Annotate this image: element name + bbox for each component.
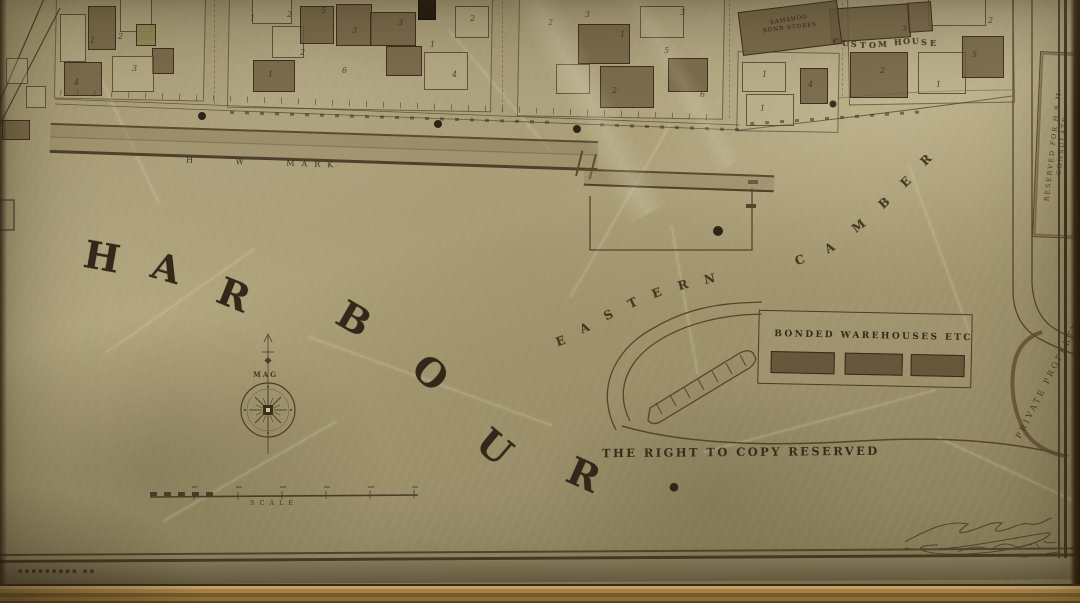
- building: [928, 0, 986, 26]
- custom-house-letter: T: [860, 40, 866, 50]
- custom-house-letter: S: [921, 37, 927, 47]
- lot-number: 3: [585, 10, 590, 19]
- lot-number: 2: [118, 32, 123, 41]
- building: [370, 12, 416, 46]
- building: [800, 68, 828, 104]
- custom-house-building: [907, 1, 933, 33]
- harbour-title-letter: .: [666, 448, 682, 502]
- lot-number: 6: [342, 66, 347, 75]
- lot-number: 3: [680, 8, 685, 17]
- map-border-line-right: [1058, 0, 1060, 558]
- warehouse-building: [844, 353, 902, 376]
- building: [336, 4, 372, 46]
- lot-number: 4: [452, 70, 457, 79]
- building: [60, 14, 86, 62]
- lot-number: 2: [287, 10, 292, 19]
- building: [6, 58, 28, 84]
- building: [112, 56, 154, 92]
- lot-number: 4: [808, 80, 813, 89]
- custom-house-letter: U: [912, 36, 919, 46]
- building: [962, 36, 1004, 78]
- custom-house-letter: O: [903, 36, 911, 46]
- harbour-title-letter: H: [80, 231, 123, 282]
- frame-edge-right: [1070, 0, 1080, 603]
- building: [850, 52, 908, 98]
- custom-house-letter: C: [832, 36, 840, 47]
- lot-number: 1: [250, 14, 255, 23]
- building: [386, 46, 422, 76]
- magnetic-north-label: MAG: [253, 370, 278, 379]
- map-border-line-right: [1064, 0, 1067, 558]
- custom-house-letter: O: [869, 40, 876, 50]
- lot-number: 2: [470, 14, 475, 23]
- street[interactable]: [729, 0, 730, 118]
- building: [252, 0, 292, 24]
- building: [300, 6, 334, 44]
- imprint-marks: ▪▪▪▪▪▪▪▪▪ ▪▪: [18, 567, 96, 575]
- custom-house-letter: M: [878, 39, 887, 49]
- custom-house-letter: S: [851, 39, 857, 49]
- lot-number: 1: [936, 80, 941, 89]
- lot-number: 1: [760, 104, 765, 113]
- lot-number: 3: [132, 64, 137, 73]
- lot-number: 4: [74, 78, 79, 87]
- building: [424, 52, 468, 90]
- frame-edge-bottom: [0, 584, 1080, 603]
- lot-number: 2: [880, 66, 885, 75]
- building: [26, 86, 46, 108]
- lot-number: 2: [612, 86, 617, 95]
- warehouse-building: [910, 354, 964, 377]
- compass-rose: [241, 334, 295, 454]
- lot-number: 5: [972, 50, 977, 59]
- lot-number: 3: [352, 26, 357, 35]
- custom-house-letter: E: [930, 38, 936, 48]
- building: [918, 52, 966, 94]
- framed-map-photo: SAMSHOO BOND STORES H W MARK BONDED WARE…: [0, 0, 1080, 603]
- lot-number: 2: [988, 16, 993, 25]
- lot-number: 1: [90, 36, 95, 45]
- lot-number: 5: [321, 6, 326, 15]
- bonded-warehouses-label: BONDED WAREHOUSES ETC: [774, 329, 973, 343]
- lot-number: 3: [398, 18, 403, 27]
- scale-label: SCALE: [250, 499, 298, 507]
- street[interactable]: [502, 0, 503, 112]
- bonded-warehouse-compound: BONDED WAREHOUSES ETC: [757, 310, 973, 388]
- warehouse-building: [770, 351, 834, 374]
- custom-house-letter: H: [894, 37, 902, 48]
- building: [152, 48, 174, 74]
- frame-edge-left: [0, 0, 7, 603]
- building: [253, 60, 295, 92]
- lot-number: 1: [430, 40, 435, 49]
- building: [418, 0, 436, 20]
- lot-number: 1: [762, 70, 767, 79]
- lot-number: 1: [620, 30, 625, 39]
- lot-number: 3: [902, 24, 907, 33]
- building: [136, 24, 156, 46]
- copyright-notice: THE RIGHT TO COPY RESERVED: [602, 444, 880, 460]
- lot-number: 1: [268, 70, 273, 79]
- street[interactable]: [214, 0, 215, 104]
- lot-number: 2: [300, 48, 305, 57]
- custom-house-letter: U: [841, 38, 849, 49]
